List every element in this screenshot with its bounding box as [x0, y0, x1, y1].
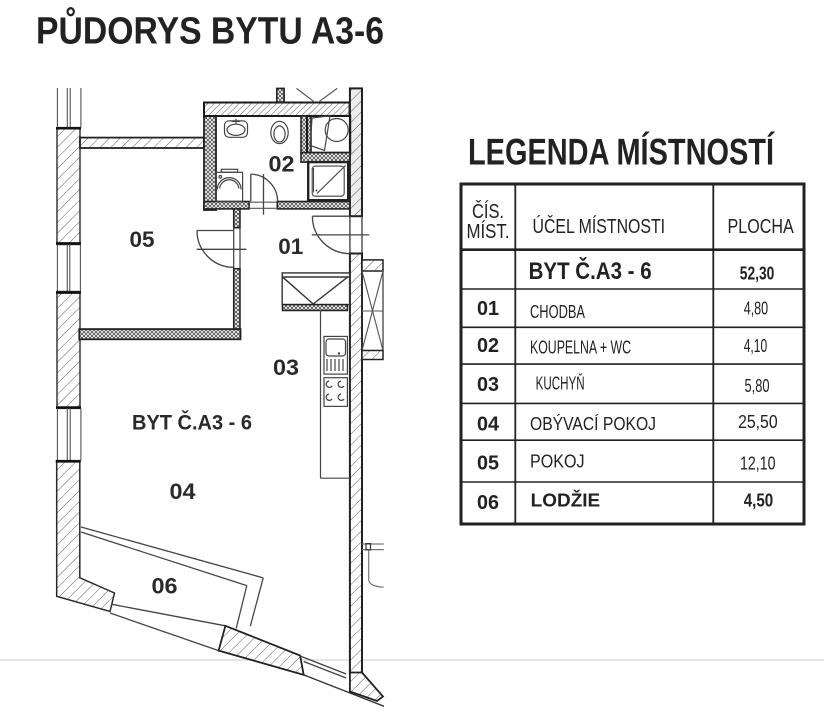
- svg-text:02: 02: [269, 152, 295, 177]
- svg-text:PLOCHA: PLOCHA: [728, 216, 795, 238]
- svg-text:LODŽIE: LODŽIE: [531, 490, 601, 511]
- svg-text:KUCHYŇ: KUCHYŇ: [536, 374, 585, 394]
- svg-text:CHODBA: CHODBA: [530, 302, 585, 322]
- svg-text:02: 02: [477, 335, 499, 357]
- svg-text:OBÝVACÍ POKOJ: OBÝVACÍ POKOJ: [530, 414, 656, 434]
- svg-text:PŮDORYS BYTU A3-6: PŮDORYS BYTU A3-6: [36, 6, 384, 53]
- svg-text:BYT Č.A3 - 6: BYT Č.A3 - 6: [529, 257, 652, 285]
- svg-text:25,50: 25,50: [738, 412, 778, 432]
- svg-text:06: 06: [477, 492, 499, 514]
- svg-text:POKOJ: POKOJ: [530, 452, 585, 472]
- svg-text:01: 01: [477, 298, 499, 320]
- svg-text:4,50: 4,50: [744, 491, 774, 511]
- svg-text:LEGENDA MÍSTNOSTÍ: LEGENDA MÍSTNOSTÍ: [468, 132, 775, 173]
- svg-text:03: 03: [273, 355, 299, 380]
- svg-text:52,30: 52,30: [740, 264, 775, 284]
- svg-text:12,10: 12,10: [740, 453, 776, 473]
- svg-text:5,80: 5,80: [745, 376, 770, 396]
- svg-text:BYT Č.A3 - 6: BYT Č.A3 - 6: [132, 411, 252, 435]
- svg-text:MÍST.: MÍST.: [467, 220, 510, 243]
- svg-text:04: 04: [477, 413, 500, 435]
- svg-text:ČÍS.: ČÍS.: [472, 200, 504, 223]
- svg-text:4,10: 4,10: [744, 336, 768, 356]
- svg-text:KOUPELNA + WC: KOUPELNA + WC: [530, 338, 631, 358]
- svg-text:01: 01: [278, 234, 303, 259]
- svg-text:4,80: 4,80: [744, 298, 769, 318]
- svg-text:05: 05: [130, 227, 155, 252]
- svg-text:ÚČEL MÍSTNOSTI: ÚČEL MÍSTNOSTI: [533, 215, 666, 238]
- svg-text:05: 05: [477, 453, 499, 475]
- svg-text:04: 04: [170, 479, 197, 504]
- svg-text:03: 03: [477, 374, 499, 396]
- svg-text:06: 06: [152, 574, 178, 599]
